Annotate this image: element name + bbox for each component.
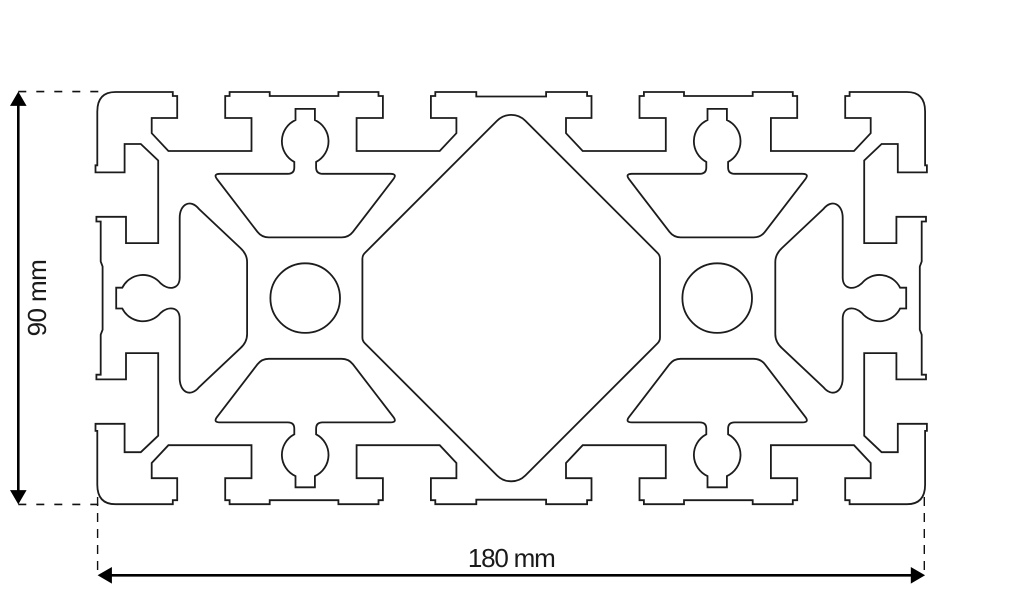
- svg-text:90 mm: 90 mm: [22, 260, 52, 336]
- svg-text:180 mm: 180 mm: [468, 543, 555, 573]
